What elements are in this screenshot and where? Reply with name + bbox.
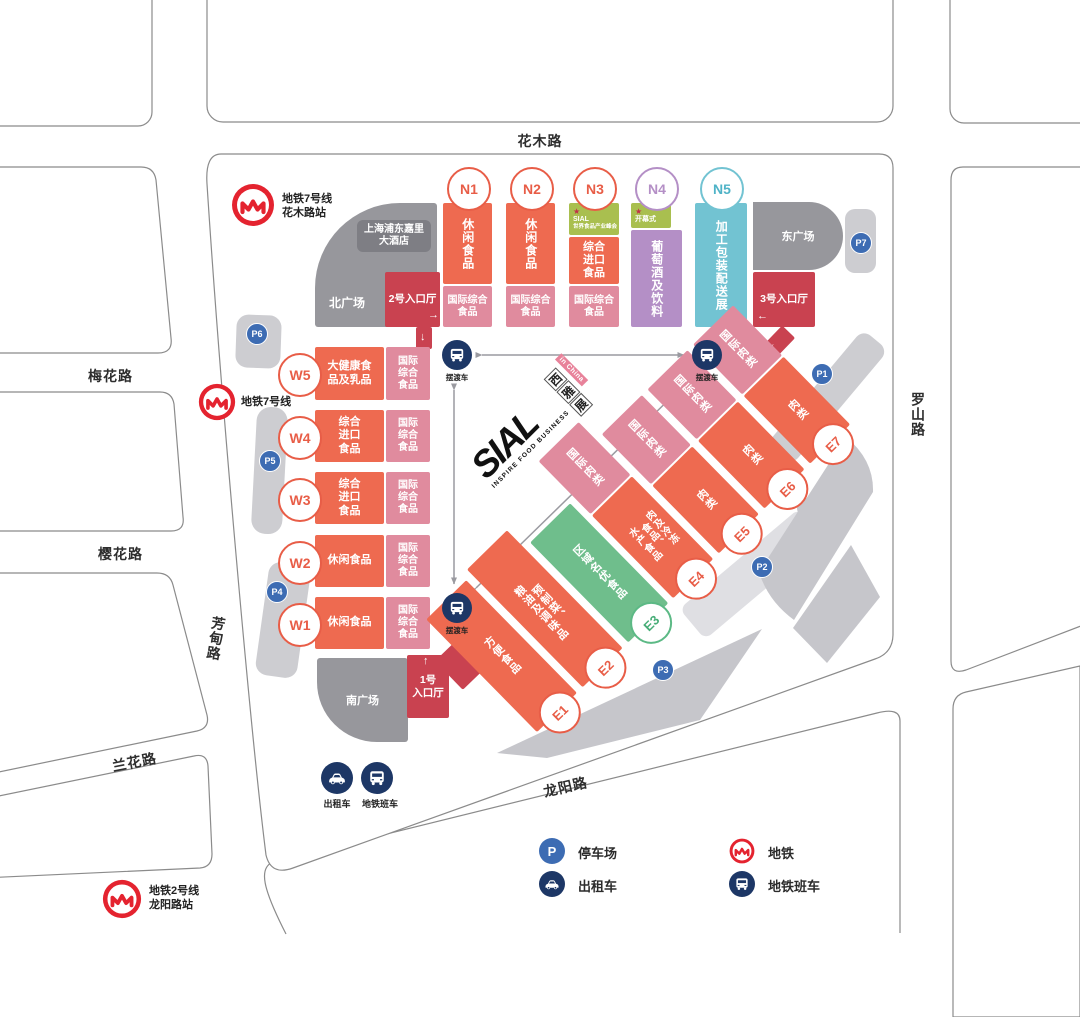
hall-badge-n2: N2 xyxy=(510,167,554,211)
hall-e2-main: 预制菜、 粮油及调味品 xyxy=(510,574,579,644)
parking-p6: P6 xyxy=(246,323,268,345)
road-label-huamu: 花木路 xyxy=(490,131,590,151)
car-icon xyxy=(542,874,562,894)
shuttle-bus-icon xyxy=(692,340,722,370)
expo-venue-map: 花木路 梅花路 樱花路 芳甸路 兰花路 龙阳路 罗山路 地铁7号线 花木路站 地… xyxy=(0,0,1080,1017)
hall-w5-main: 大健康食 品及乳品 xyxy=(328,360,372,386)
hall-w1-sub: 国际 综合 食品 xyxy=(398,605,418,641)
hall-n3-header-sub: 世界食品产业峰会 xyxy=(573,224,617,230)
hall-n2-sub: 国际综合 食品 xyxy=(511,295,551,319)
hall-w3-sub: 国际 综合 食品 xyxy=(398,480,418,516)
road-label-yinghua: 樱花路 xyxy=(98,544,143,564)
legend-taxi-icon xyxy=(539,871,565,897)
metro-icon xyxy=(198,383,236,421)
hall-badge-w2: W2 xyxy=(278,541,322,585)
parking-p3: P3 xyxy=(652,659,674,681)
hall-w5-sub: 国际 综合 食品 xyxy=(398,356,418,392)
hall-badge-w5: W5 xyxy=(278,353,322,397)
hall-n2-main: 休闲食品 xyxy=(523,218,537,270)
hall-e1-main: 方便食品 xyxy=(480,634,523,677)
bus-icon xyxy=(365,766,389,790)
shuttle-stop-label: 摆渡车 xyxy=(685,372,729,383)
parking-p1: P1 xyxy=(811,363,833,385)
legend-metro-bus-icon xyxy=(729,871,755,897)
hall-badge-n3: N3 xyxy=(573,167,617,211)
hall-n3-header-top: SIAL xyxy=(573,216,589,224)
entrance-2-corridor: ↓ xyxy=(416,327,432,349)
bus-icon xyxy=(696,344,718,366)
parking-p5: P5 xyxy=(259,450,281,472)
arrow-left-icon: ← xyxy=(757,311,768,322)
hall-e5-sub: 国际肉类 xyxy=(625,418,668,461)
metro-line7-label: 地铁7号线 xyxy=(241,395,291,409)
taxi-stand-label: 出租车 xyxy=(315,797,359,810)
north-plaza-label: 北广场 xyxy=(329,294,365,311)
hall-n5-main: 加工包装配送展 xyxy=(714,220,728,311)
east-plaza-label: 东广场 xyxy=(782,228,815,244)
arrow-right-icon: → xyxy=(428,310,439,321)
hall-badge-w4: W4 xyxy=(278,416,322,460)
legend-taxi-label: 出租车 xyxy=(578,876,617,895)
arrow-down-icon: ↓ xyxy=(420,332,426,343)
metro-shuttle-label: 地铁班车 xyxy=(355,797,405,810)
taxi-icon xyxy=(321,762,353,794)
hall-n3-main: 综合 进口 食品 xyxy=(583,241,605,281)
hall-w2-sub: 国际 综合 食品 xyxy=(398,543,418,579)
hall-e3-main: 区域名优食品 xyxy=(569,543,629,604)
entrance-hall-2: 2号入口厅 → xyxy=(385,272,440,327)
hall-n4-main: 葡萄酒及饮料 xyxy=(649,240,663,318)
road-label-luoshan: 罗山路 xyxy=(908,392,928,437)
parking-p4: P4 xyxy=(266,581,288,603)
metro-station-line2-longyang: 地铁2号线 龙阳路站 xyxy=(149,884,199,913)
hall-e6-main: 肉类 xyxy=(738,442,764,468)
star-icon: ★ xyxy=(635,208,642,216)
hall-w1-main: 休闲食品 xyxy=(328,616,372,629)
parking-p7: P7 xyxy=(850,232,872,254)
kerry-hotel-label: 上海浦东嘉里 大酒店 xyxy=(357,220,431,252)
hall-w2-main: 休闲食品 xyxy=(328,554,372,567)
hall-w3-main: 综合 进口 食品 xyxy=(339,478,361,518)
shuttle-bus-icon xyxy=(442,593,472,623)
south-plaza: 南广场 xyxy=(317,658,408,742)
road-label-lanhua: 兰花路 xyxy=(111,748,159,776)
hall-badge-w1: W1 xyxy=(278,603,322,647)
hall-badge-n5: N5 xyxy=(700,167,744,211)
legend-metro-icon xyxy=(729,838,755,864)
metro-shuttle-icon xyxy=(361,762,393,794)
metro-icon xyxy=(231,183,275,227)
legend-metro-bus-label: 地铁班车 xyxy=(768,876,820,895)
east-plaza: 东广场 xyxy=(753,202,843,270)
hall-n1-main: 休闲食品 xyxy=(460,218,474,270)
hall-e7-main: 肉类 xyxy=(784,397,810,423)
legend-parking-label: 停车场 xyxy=(578,843,617,862)
arrow-up-icon: ↑ xyxy=(423,656,429,667)
parking-p2: P2 xyxy=(751,556,773,578)
metro-icon xyxy=(102,879,142,919)
entrance-hall-2-label: 2号入口厅 xyxy=(389,293,437,306)
hall-badge-n1: N1 xyxy=(447,167,491,211)
shuttle-bus-icon xyxy=(442,340,472,370)
hall-e4-main: 肉及冷冻 食品、 水产食品 xyxy=(624,509,681,566)
road-label-longyang: 龙阳路 xyxy=(541,772,589,802)
shuttle-stop-label: 摆渡车 xyxy=(435,372,479,383)
entrance-hall-1-label: 1号 入口厅 xyxy=(412,674,444,699)
hall-e5-main: 肉类 xyxy=(692,487,718,513)
hall-n4-header: 开幕式 xyxy=(635,216,656,224)
south-plaza-label: 南广场 xyxy=(346,692,379,708)
bus-icon xyxy=(446,597,468,619)
shuttle-stop-label: 摆渡车 xyxy=(435,625,479,636)
hall-n1-sub: 国际综合 食品 xyxy=(448,295,488,319)
star-icon: ★ xyxy=(573,208,580,216)
metro-station-line7-huamu: 地铁7号线 花木路站 xyxy=(282,192,332,221)
hall-e7-sub: 国际肉类 xyxy=(716,328,759,371)
hall-badge-n4: N4 xyxy=(635,167,679,211)
legend-metro-label: 地铁 xyxy=(768,843,794,862)
road-label-meihua: 梅花路 xyxy=(88,366,133,386)
bus-icon xyxy=(446,344,468,366)
hall-badge-w3: W3 xyxy=(278,478,322,522)
legend-parking-icon: P xyxy=(539,838,565,864)
car-icon xyxy=(325,766,349,790)
bus-icon xyxy=(732,874,752,894)
entrance-hall-3-label: 3号入口厅 xyxy=(760,293,808,306)
hall-w4-sub: 国际 综合 食品 xyxy=(398,418,418,454)
hall-w4-main: 综合 进口 食品 xyxy=(339,416,361,456)
hall-n3-sub: 国际综合 食品 xyxy=(574,295,614,319)
entrance-hall-1: 1号 入口厅 ↑ xyxy=(407,655,449,718)
road-label-fangdian: 芳甸路 xyxy=(203,615,230,663)
entrance-hall-3: 3号入口厅 ← xyxy=(753,272,815,327)
hall-e4-sub: 国际肉类 xyxy=(563,446,606,489)
